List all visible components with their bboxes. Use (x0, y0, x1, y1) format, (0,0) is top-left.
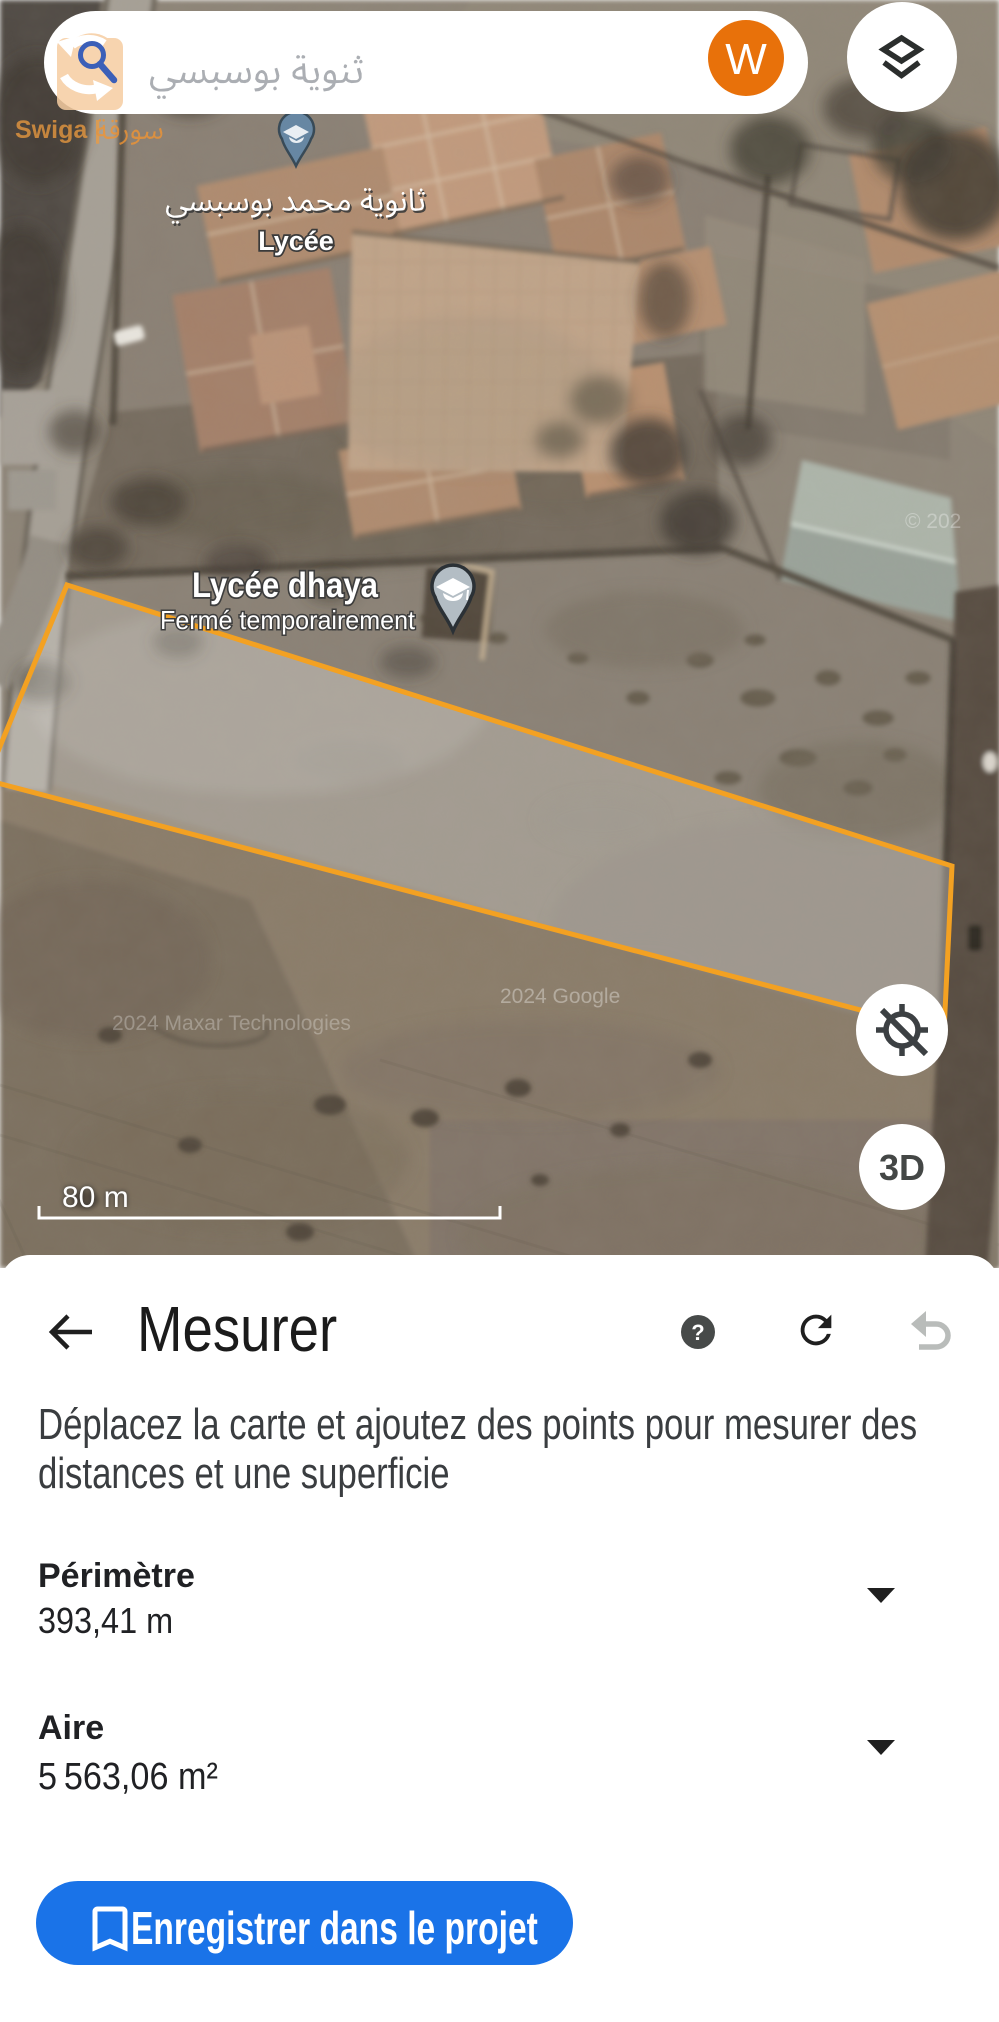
svg-text:Lycée: Lycée (258, 226, 334, 256)
svg-text:© 202: © 202 (905, 510, 961, 533)
svg-text:80 m: 80 m (62, 1181, 129, 1214)
svg-text:?: ? (691, 1320, 704, 1345)
svg-text:Lycée dhaya: Lycée dhaya (192, 566, 378, 605)
svg-text:2024 Maxar Technologies: 2024 Maxar Technologies (112, 1012, 351, 1035)
svg-text:Fermé temporairement: Fermé temporairement (160, 605, 416, 635)
svg-text:W: W (725, 35, 767, 84)
svg-text:Swiga |: Swiga | (15, 116, 101, 144)
svg-text:3D: 3D (879, 1147, 925, 1188)
svg-text:2024 Google: 2024 Google (500, 985, 620, 1008)
